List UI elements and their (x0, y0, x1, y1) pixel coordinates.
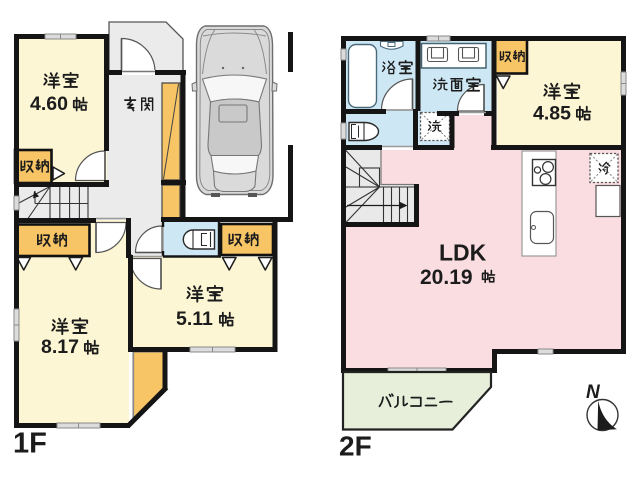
svg-text:20.19: 20.19 (420, 266, 473, 289)
svg-text:2F: 2F (339, 431, 372, 462)
svg-text:1F: 1F (13, 428, 47, 460)
svg-text:8.17: 8.17 (41, 336, 79, 358)
svg-text:4.85: 4.85 (533, 103, 571, 125)
svg-text:5.11: 5.11 (176, 308, 213, 330)
svg-text:4.60: 4.60 (30, 93, 68, 115)
svg-text:LDK: LDK (439, 240, 487, 266)
